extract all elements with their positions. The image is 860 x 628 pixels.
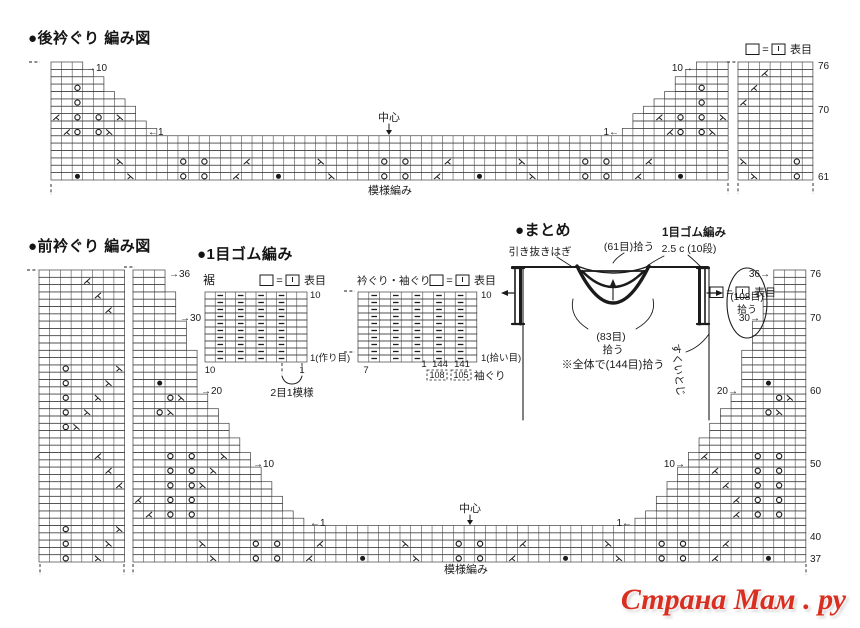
right-decrease-symbol (210, 559, 213, 562)
bobble-symbol (157, 381, 162, 386)
left-decrease-symbol (670, 132, 673, 135)
yarn-over-symbol (699, 100, 704, 105)
yarn-over-symbol (63, 395, 68, 400)
right-decrease-symbol (106, 544, 109, 547)
left-decrease-symbol (736, 500, 739, 503)
schematic-curve (577, 266, 649, 273)
left-decrease-symbol (108, 471, 111, 474)
yarn-over-symbol (63, 381, 68, 386)
rib-hem-repeat-label: 2目1模様 (270, 386, 314, 399)
yarn-over-symbol (403, 159, 408, 164)
left-decrease-symbol (659, 118, 662, 121)
left-decrease-symbol (138, 500, 141, 503)
arrow-head (716, 290, 723, 296)
arrow-head (467, 520, 473, 525)
yarn-over-symbol (777, 395, 782, 400)
yarn-over-symbol (75, 85, 80, 90)
rib-neck-row-1: 1(拾い目) (481, 352, 521, 364)
left-decrease-symbol (149, 515, 152, 518)
left-decrease-symbol (236, 177, 239, 180)
legend-equals: = (762, 44, 768, 56)
right-decrease-symbol (606, 544, 609, 547)
right-decrease-symbol (95, 398, 98, 401)
right-decrease-symbol (128, 177, 131, 180)
front-neckline-title: ●前衿ぐり 編み図 (28, 235, 151, 256)
legend-blank-box (260, 275, 273, 286)
yarn-over-symbol (202, 174, 207, 179)
rib-armhole-st-108: 108 (429, 370, 444, 380)
yarn-over-symbol (63, 424, 68, 429)
charts-canvas: =表目=表目=表目=表目→10←11←10→中心模様編み767061→36→30… (0, 0, 860, 628)
rib-neck-st-7: 7 (363, 365, 368, 376)
rib-armhole-label: 袖ぐり (474, 369, 506, 382)
right-decrease-symbol (200, 486, 203, 489)
yarn-over-symbol (189, 512, 194, 517)
yarn-over-symbol (96, 115, 101, 120)
bobble-symbol (75, 174, 80, 179)
schematic-curve (613, 253, 624, 263)
yarn-over-symbol (678, 115, 683, 120)
left-decrease-symbol (447, 162, 450, 165)
front-center-label: 中心 (459, 502, 481, 515)
stitch-legend: =表目 (746, 42, 812, 56)
left-decrease-symbol (56, 118, 59, 121)
back-shaping-row-10: →10 (86, 63, 108, 74)
right-decrease-symbol (210, 471, 213, 474)
front-shaping-row-1-right: 1← (616, 518, 632, 529)
yarn-over-symbol (75, 115, 80, 120)
right-decrease-symbol (74, 427, 77, 430)
left-decrease-symbol (98, 296, 101, 299)
yarn-over-symbol (583, 174, 588, 179)
assembly-title: ●まとめ (515, 219, 571, 240)
schematic-curve (688, 255, 701, 267)
yarn-over-symbol (63, 541, 68, 546)
back-row-70: 70 (818, 105, 830, 116)
legend-label: 表目 (790, 42, 812, 56)
rib-hem-chart (205, 292, 307, 362)
yarn-over-symbol (680, 541, 685, 546)
right-decrease-symbol (751, 177, 754, 180)
right-decrease-symbol (318, 162, 321, 165)
yarn-over-symbol (253, 556, 258, 561)
left-decrease-symbol (437, 177, 440, 180)
yarn-over-symbol (777, 497, 782, 502)
front-left-strip (39, 270, 125, 562)
right-decrease-symbol (117, 529, 120, 532)
pickup-83-label: (83目) (596, 331, 625, 343)
right-decrease-symbol (710, 132, 713, 135)
yarn-over-symbol (777, 468, 782, 473)
yarn-over-symbol (63, 527, 68, 532)
bobble-symbol (276, 174, 281, 179)
rib-hem-row-10: 10 (310, 290, 321, 301)
pickup-108-verb: 拾う (737, 303, 757, 316)
yarn-over-symbol (275, 541, 280, 546)
front-row-40: 40 (810, 532, 822, 543)
schematic-curve (282, 376, 302, 384)
legend-label: 表目 (474, 273, 496, 287)
yarn-over-symbol (777, 454, 782, 459)
left-decrease-symbol (638, 177, 641, 180)
yarn-over-symbol (189, 454, 194, 459)
yarn-over-symbol (63, 410, 68, 415)
front-shaping-row-10: →10 (253, 459, 275, 470)
front-shaping-row-1-left: ←1 (310, 518, 326, 529)
bobble-symbol (477, 174, 482, 179)
schematic-line (557, 257, 571, 266)
arrow-head (501, 290, 508, 296)
arrow-head (386, 130, 392, 135)
rib-section-title: ●1目ゴム編み (197, 243, 293, 264)
right-decrease-symbol (413, 559, 416, 562)
right-decrease-symbol (221, 456, 224, 459)
yarn-over-symbol (456, 541, 461, 546)
yarn-over-symbol (96, 129, 101, 134)
right-decrease-symbol (117, 162, 120, 165)
stitch-legend: =表目 (260, 273, 326, 287)
right-decrease-symbol (84, 413, 87, 416)
front-row-60: 60 (810, 386, 822, 397)
right-decrease-symbol (776, 413, 779, 416)
yarn-over-symbol (456, 556, 461, 561)
left-decrease-symbol (67, 132, 70, 135)
yarn-over-symbol (699, 85, 704, 90)
rib-neck-label: 衿ぐり・袖ぐり (357, 274, 431, 287)
yarn-over-symbol (181, 159, 186, 164)
bobble-symbol (766, 381, 771, 386)
right-decrease-symbol (787, 398, 790, 401)
yarn-over-symbol (777, 483, 782, 488)
bobble-symbol (563, 556, 568, 561)
yarn-over-symbol (755, 454, 760, 459)
right-decrease-symbol (741, 162, 744, 165)
bobble-symbol (766, 556, 771, 561)
yarn-over-symbol (755, 512, 760, 517)
left-decrease-symbol (743, 103, 746, 106)
schematic-curve (636, 299, 654, 329)
left-decrease-symbol (725, 544, 728, 547)
yarn-over-symbol (189, 468, 194, 473)
back-center-label: 中心 (378, 111, 400, 124)
pickup-108-label: (108目) (730, 292, 763, 303)
left-decrease-symbol (725, 486, 728, 489)
yarn-over-symbol (604, 174, 609, 179)
legend-equals: = (276, 275, 282, 287)
left-decrease-symbol (736, 515, 739, 518)
rib-armhole-st-105: 105 (453, 370, 468, 380)
front-row-76: 76 (810, 269, 822, 280)
left-decrease-symbol (246, 162, 249, 165)
rib-hem-st-10: 10 (205, 365, 216, 376)
back-shaping-row-1-right: 1← (603, 127, 619, 138)
back-right-strip (738, 62, 813, 180)
legend-equals: = (446, 275, 452, 287)
left-decrease-symbol (754, 88, 757, 91)
right-decrease-symbol (200, 544, 203, 547)
yarn-over-symbol (755, 468, 760, 473)
right-decrease-symbol (117, 369, 120, 372)
left-decrease-symbol (108, 310, 111, 313)
right-decrease-symbol (329, 177, 332, 180)
yarn-over-symbol (794, 159, 799, 164)
pickup-61-label: (61目)拾う (604, 240, 654, 253)
watermark: Страна Мам . ру (621, 583, 846, 617)
yarn-over-symbol (275, 556, 280, 561)
yarn-over-symbol (699, 115, 704, 120)
yarn-over-symbol (777, 512, 782, 517)
left-decrease-symbol (715, 559, 718, 562)
yarn-over-symbol (699, 129, 704, 134)
yarn-over-symbol (189, 483, 194, 488)
back-pattern-label: 模様編み (368, 183, 412, 197)
front-shaping-row-36-right: 36→ (749, 269, 770, 280)
left-decrease-symbol (764, 73, 767, 76)
right-decrease-symbol (403, 544, 406, 547)
right-decrease-symbol (720, 118, 723, 121)
yarn-over-symbol (755, 483, 760, 488)
right-decrease-symbol (519, 162, 522, 165)
rib-neck-st-1: 1 (421, 359, 426, 370)
rib-neck-st-144: 144 (432, 359, 448, 370)
rib-neck-armhole-chart (358, 292, 477, 362)
left-decrease-symbol (715, 471, 718, 474)
left-decrease-symbol (704, 456, 707, 459)
right-decrease-symbol (117, 118, 120, 121)
yarn-over-symbol (157, 410, 162, 415)
legend-label: 表目 (304, 273, 326, 287)
right-decrease-symbol (178, 398, 181, 401)
rib-hem-label: 裾 (203, 272, 215, 287)
legend-blank-box (430, 275, 443, 286)
right-decrease-symbol (106, 383, 109, 386)
front-row-37: 37 (810, 554, 822, 565)
rib-hem-row-1: 1(作り目) (310, 352, 350, 364)
back-row-76: 76 (818, 61, 830, 72)
left-decrease-symbol (87, 281, 90, 284)
right-decrease-symbol (616, 559, 619, 562)
left-decrease-symbol (512, 559, 515, 562)
stitch-legend: =表目 (430, 273, 496, 287)
yarn-over-symbol (168, 512, 173, 517)
left-decrease-symbol (119, 486, 122, 489)
slip-stitch-join-label: 引き抜きはぎ (509, 245, 572, 258)
rib-band-label: 1目ゴム編み (662, 225, 726, 239)
yarn-over-symbol (75, 129, 80, 134)
yarn-over-symbol (202, 159, 207, 164)
yarn-over-symbol (181, 174, 186, 179)
back-neckline-title: ●後衿ぐり 編み図 (28, 27, 151, 48)
front-shaping-row-30: →30 (180, 313, 202, 324)
front-shaping-row-36: →36 (169, 269, 191, 280)
front-shaping-row-20: →20 (201, 386, 223, 397)
rib-neck-st-141: 141 (454, 359, 470, 370)
yarn-over-symbol (168, 468, 173, 473)
yarn-over-symbol (382, 159, 387, 164)
knitting-pattern-page: =表目=表目=表目=表目→10←11←10→中心模様編み767061→36→30… (0, 0, 860, 628)
back-shaping-row-10-right: 10→ (672, 63, 693, 74)
yarn-over-symbol (189, 497, 194, 502)
back-row-61: 61 (818, 172, 830, 183)
yarn-over-symbol (253, 541, 258, 546)
yarn-over-symbol (659, 556, 664, 561)
right-decrease-symbol (95, 559, 98, 562)
yarn-over-symbol (75, 100, 80, 105)
yarn-over-symbol (680, 556, 685, 561)
yarn-over-symbol (63, 556, 68, 561)
left-decrease-symbol (523, 544, 526, 547)
left-decrease-symbol (648, 162, 651, 165)
left-decrease-symbol (320, 544, 323, 547)
yarn-over-symbol (604, 159, 609, 164)
front-shaping-row-10-right: 10→ (664, 459, 685, 470)
front-shaping-row-20-right: 20→ (717, 386, 738, 397)
yarn-over-symbol (755, 497, 760, 502)
yarn-over-symbol (168, 395, 173, 400)
pickup-count-oval (727, 268, 767, 338)
yarn-over-symbol (168, 454, 173, 459)
left-decrease-symbol (309, 559, 312, 562)
schematic-curve (572, 299, 588, 329)
legend-blank-box (746, 44, 759, 55)
yarn-over-symbol (382, 174, 387, 179)
left-decrease-symbol (98, 456, 101, 459)
front-row-50: 50 (810, 459, 822, 470)
mattress-seam-label: すくいとじ (669, 343, 686, 396)
yarn-over-symbol (63, 366, 68, 371)
rib-band-size-label: 2.5 c (10段) (662, 242, 717, 255)
yarn-over-symbol (168, 483, 173, 488)
bobble-symbol (678, 174, 683, 179)
rib-neck-row-10: 10 (481, 290, 492, 301)
pickup-total-144-label: ※全体で(144目)拾う (562, 357, 665, 371)
back-shaping-row-1-left: ←1 (148, 127, 164, 138)
yarn-over-symbol (794, 174, 799, 179)
yarn-over-symbol (659, 541, 664, 546)
yarn-over-symbol (678, 129, 683, 134)
yarn-over-symbol (478, 556, 483, 561)
bobble-symbol (360, 556, 365, 561)
front-row-70: 70 (810, 313, 822, 324)
right-decrease-symbol (530, 177, 533, 180)
yarn-over-symbol (478, 541, 483, 546)
schematic-curve (646, 256, 664, 267)
arrow-head (610, 279, 616, 286)
yarn-over-symbol (766, 410, 771, 415)
schematic-curve (686, 334, 709, 352)
front-pattern-label: 模様編み (444, 562, 488, 576)
yarn-over-symbol (403, 174, 408, 179)
pickup-83-verb: 拾う (603, 343, 624, 356)
yarn-over-symbol (583, 159, 588, 164)
yarn-over-symbol (168, 497, 173, 502)
right-decrease-symbol (106, 132, 109, 135)
right-decrease-symbol (168, 413, 171, 416)
